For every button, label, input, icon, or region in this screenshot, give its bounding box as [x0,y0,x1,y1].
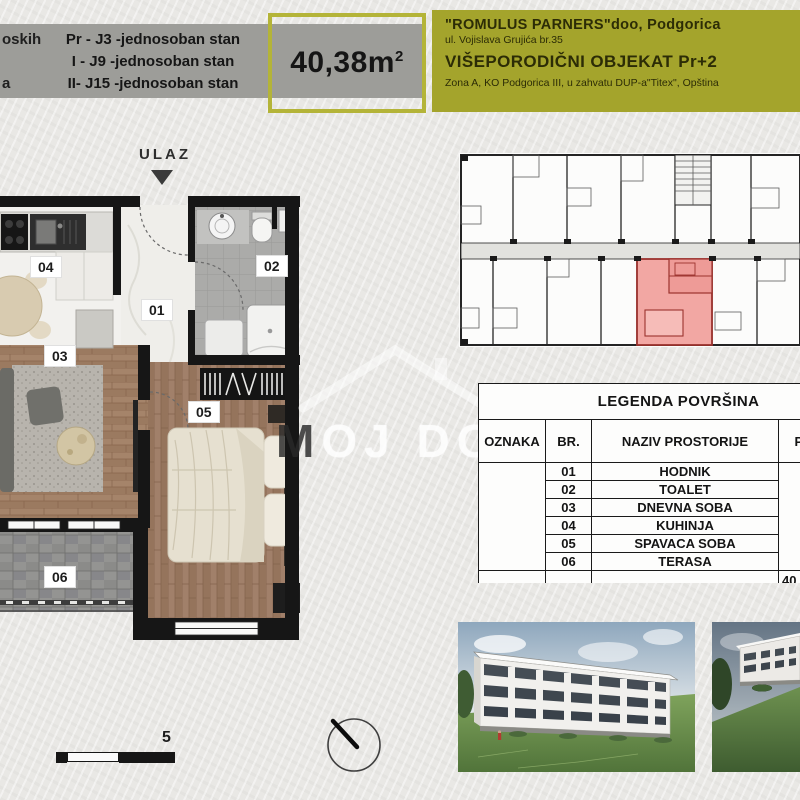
company-address: ul. Vojislava Grujića br.35 [445,34,800,46]
project-zone: Zona A, KO Podgorica III, u zahvatu DUP-… [445,77,800,89]
building-render-2 [712,622,800,772]
unit-list: Pr - J3 -jednosoban stan I - J9 -jednoso… [44,29,262,95]
room-label-03: 03 [44,345,76,367]
legend-total-row: 40,38 [479,571,800,584]
legend-povrsina-cell [779,463,800,571]
legend-col-povrsina: POVRŠINA [779,420,800,463]
unit-line-1: Pr - J3 -jednosoban stan [44,29,262,51]
scale-bar [56,752,175,763]
legend-row: 01 HODNIK [479,463,800,481]
company-name: "ROMULUS PARNERS"doo, Podgorica [445,17,800,33]
header-fragment-1: oskih [2,31,41,48]
project-title: VIŠEPORODIČNI OBJEKAT Pr+2 [445,52,800,72]
legend-table: LEGENDA POVRŠINA OZNAKA BR. NAZIV PROSTO… [478,383,800,583]
legend-col-naziv: NAZIV PROSTORIJE [592,420,779,463]
north-compass-icon [321,713,387,779]
room-label-05: 05 [188,401,220,423]
unit-line-2: I - J9 -jednosoban stan [44,51,262,73]
legend-title: LEGENDA POVRŠINA [479,384,800,420]
keyplan-highlighted-unit [637,259,712,345]
legend-col-br: BR. [546,420,592,463]
floor-plan-drawing [0,130,310,690]
legend-oznaka-cell [479,463,546,571]
stairwell [675,155,711,205]
entrance-arrow-icon [151,170,173,185]
area-value: 40,38m2 [290,46,404,80]
project-info-box: "ROMULUS PARNERS"doo, Podgorica ul. Voji… [432,10,800,112]
header-fragment-2: a [2,75,10,92]
room-label-01: 01 [141,299,173,321]
scale-number: 5 [162,729,171,747]
key-plan-drawing [455,148,800,360]
unit-line-3: II- J15 -jednosoban stan [44,73,262,95]
plan-sheet: oskih a Pr - J3 -jednosoban stan I - J9 … [0,0,800,800]
room-label-02: 02 [256,255,288,277]
room-label-06: 06 [44,566,76,588]
area-box: 40,38m2 [268,13,426,113]
legend-col-oznaka: OZNAKA [479,420,546,463]
building-render-1 [458,622,695,772]
legend-total-value: 40,38 [779,571,800,584]
legend-table-container: LEGENDA POVRŠINA OZNAKA BR. NAZIV PROSTO… [478,383,800,583]
entrance-label: ULAZ [139,146,191,163]
room-label-04: 04 [30,256,62,278]
